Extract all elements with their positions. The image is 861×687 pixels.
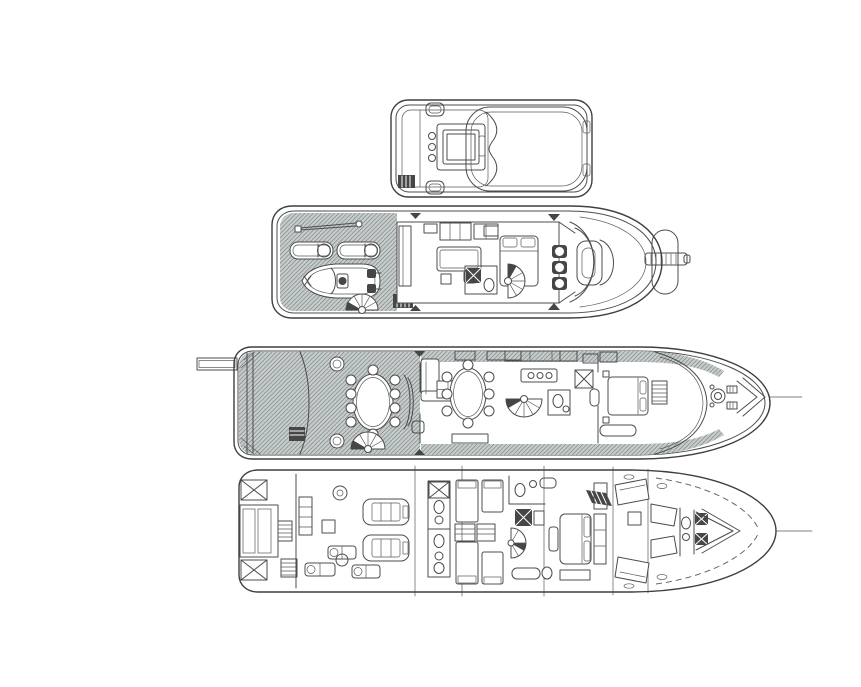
engine-starboard	[363, 499, 409, 525]
helm-seat	[552, 277, 567, 290]
vip-bed	[560, 514, 591, 564]
generator	[305, 563, 335, 576]
toilet-icon	[484, 279, 494, 292]
generator	[328, 546, 356, 559]
twin-bed	[456, 542, 478, 584]
helm-seat	[552, 245, 567, 258]
yacht-ga-drawing	[0, 0, 861, 687]
boarding-step-grill	[289, 427, 305, 441]
tank-icon	[333, 486, 347, 500]
toilet-icon	[434, 535, 444, 548]
toilet-icon	[682, 517, 691, 529]
vent-grill	[398, 175, 415, 188]
tender-boat	[302, 264, 381, 298]
toilet-icon	[434, 501, 444, 514]
foredeck-stairs	[652, 381, 667, 404]
galley-island	[521, 369, 557, 382]
drawing-sheet	[0, 0, 861, 687]
toilet-icon	[515, 484, 525, 497]
toilet-icon	[553, 395, 563, 408]
twin-bed	[482, 552, 503, 584]
generator	[352, 565, 380, 578]
stateroom-sofa	[600, 425, 636, 436]
engine-port	[363, 535, 409, 561]
twin-bed	[482, 480, 503, 512]
twin-bed	[456, 480, 478, 522]
aft-dining-table	[353, 374, 393, 430]
master-bed	[608, 377, 648, 415]
helm-seat	[552, 261, 567, 274]
toilet-icon	[542, 567, 552, 579]
